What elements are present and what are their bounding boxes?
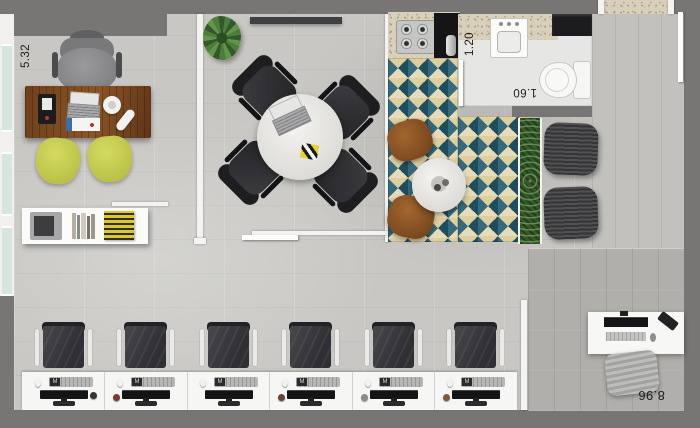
window [2,152,12,216]
entry-corridor-floor [592,14,684,248]
workstation: M [434,322,517,410]
workstation: M [269,322,352,410]
dimension-label-bathroom-length: 1.60 [513,86,537,98]
keyboard: M [379,377,423,387]
desk-phone [38,94,56,124]
dimension-label-open-space: 8.96 [638,388,665,403]
task-chair [282,322,339,370]
wall-console [250,17,342,24]
mouse [35,378,41,387]
cup [278,394,285,401]
sink-basin [497,31,521,53]
entry-door-mat [604,0,668,14]
keyboard: M [49,377,93,387]
faucet [515,22,519,26]
burner [401,38,412,49]
executive-chair [52,30,122,94]
burner [401,24,412,35]
break-table [412,158,466,212]
mouse [117,378,123,387]
plant [203,16,241,60]
laptop [67,91,101,120]
burner [417,38,428,49]
task-chair [447,322,504,370]
keyboard [606,332,646,341]
tile-rug [458,116,526,242]
meeting-table [257,94,343,180]
mouse [365,378,371,387]
keyboard-badge: M [380,378,390,386]
sink [490,18,528,58]
faucet [499,22,503,26]
cup [361,394,368,401]
left-lower-wall [0,296,14,428]
phone [657,311,679,331]
phone-button [45,116,49,120]
webcam [620,311,628,316]
mouse [200,378,206,387]
dimension-label-office: 5.32 [20,44,32,68]
toilet [537,60,591,98]
wall-end-cap [194,238,206,244]
toilet-bowl [539,62,577,98]
workstation: M [187,322,270,410]
keyboard-badge: M [297,378,307,386]
monitor [604,317,648,327]
task-chair [35,322,92,370]
cup [113,394,120,401]
workstation: M [104,322,187,410]
book [81,213,86,239]
wall-shelf [112,202,168,206]
brochure [300,143,319,161]
entry-jamb [598,0,604,14]
faucet [507,22,511,26]
bathroom-door-leaf [459,60,463,106]
keyboard-badge: M [132,378,142,386]
burner [417,24,428,35]
bathroom-vanity [552,14,592,36]
book [87,216,90,239]
book [91,214,95,239]
keyboard: M [296,377,340,387]
workstation: M [352,322,435,410]
cup [443,394,450,401]
workstation: M [22,322,105,410]
mouse [650,333,656,342]
keyboard: M [461,377,505,387]
cup [442,179,449,186]
manager-desk [588,312,684,354]
desk-lamp [103,96,121,114]
wall-office-meeting [197,14,203,242]
bottle [446,35,456,56]
wall-openspace-right [521,300,527,410]
book [72,213,76,239]
bathroom-south-wall [512,106,592,117]
yellow-books [104,211,134,240]
kitchen-appliance [434,13,460,59]
window [2,226,12,296]
task-chair [200,322,257,370]
printer [30,212,62,240]
stove [396,20,436,54]
keyboard: M [131,377,175,387]
phone-screen [42,98,52,110]
mouse [447,378,453,387]
cup [90,392,97,399]
entry-jamb [668,0,674,14]
keyboard-badge: M [215,378,225,386]
mouse [282,378,288,387]
window [2,44,12,132]
floor-plan: M M M M M M [0,0,700,428]
pouf [543,122,599,176]
task-chair [117,322,174,370]
entry-door-leaf [678,12,683,82]
keyboard-badge: M [50,378,60,386]
pouf [543,186,599,240]
dimension-label-bathroom-width: 1.20 [464,32,476,56]
executive-desk [25,86,151,138]
keyboard: M [214,377,258,387]
cup [434,184,441,191]
hedge-planter [518,118,542,244]
meeting-room-sliding-door [242,235,298,240]
book [77,215,80,239]
magazine [66,118,100,131]
keyboard-badge: M [462,378,472,386]
task-chair [365,322,422,370]
credenza [22,208,148,244]
